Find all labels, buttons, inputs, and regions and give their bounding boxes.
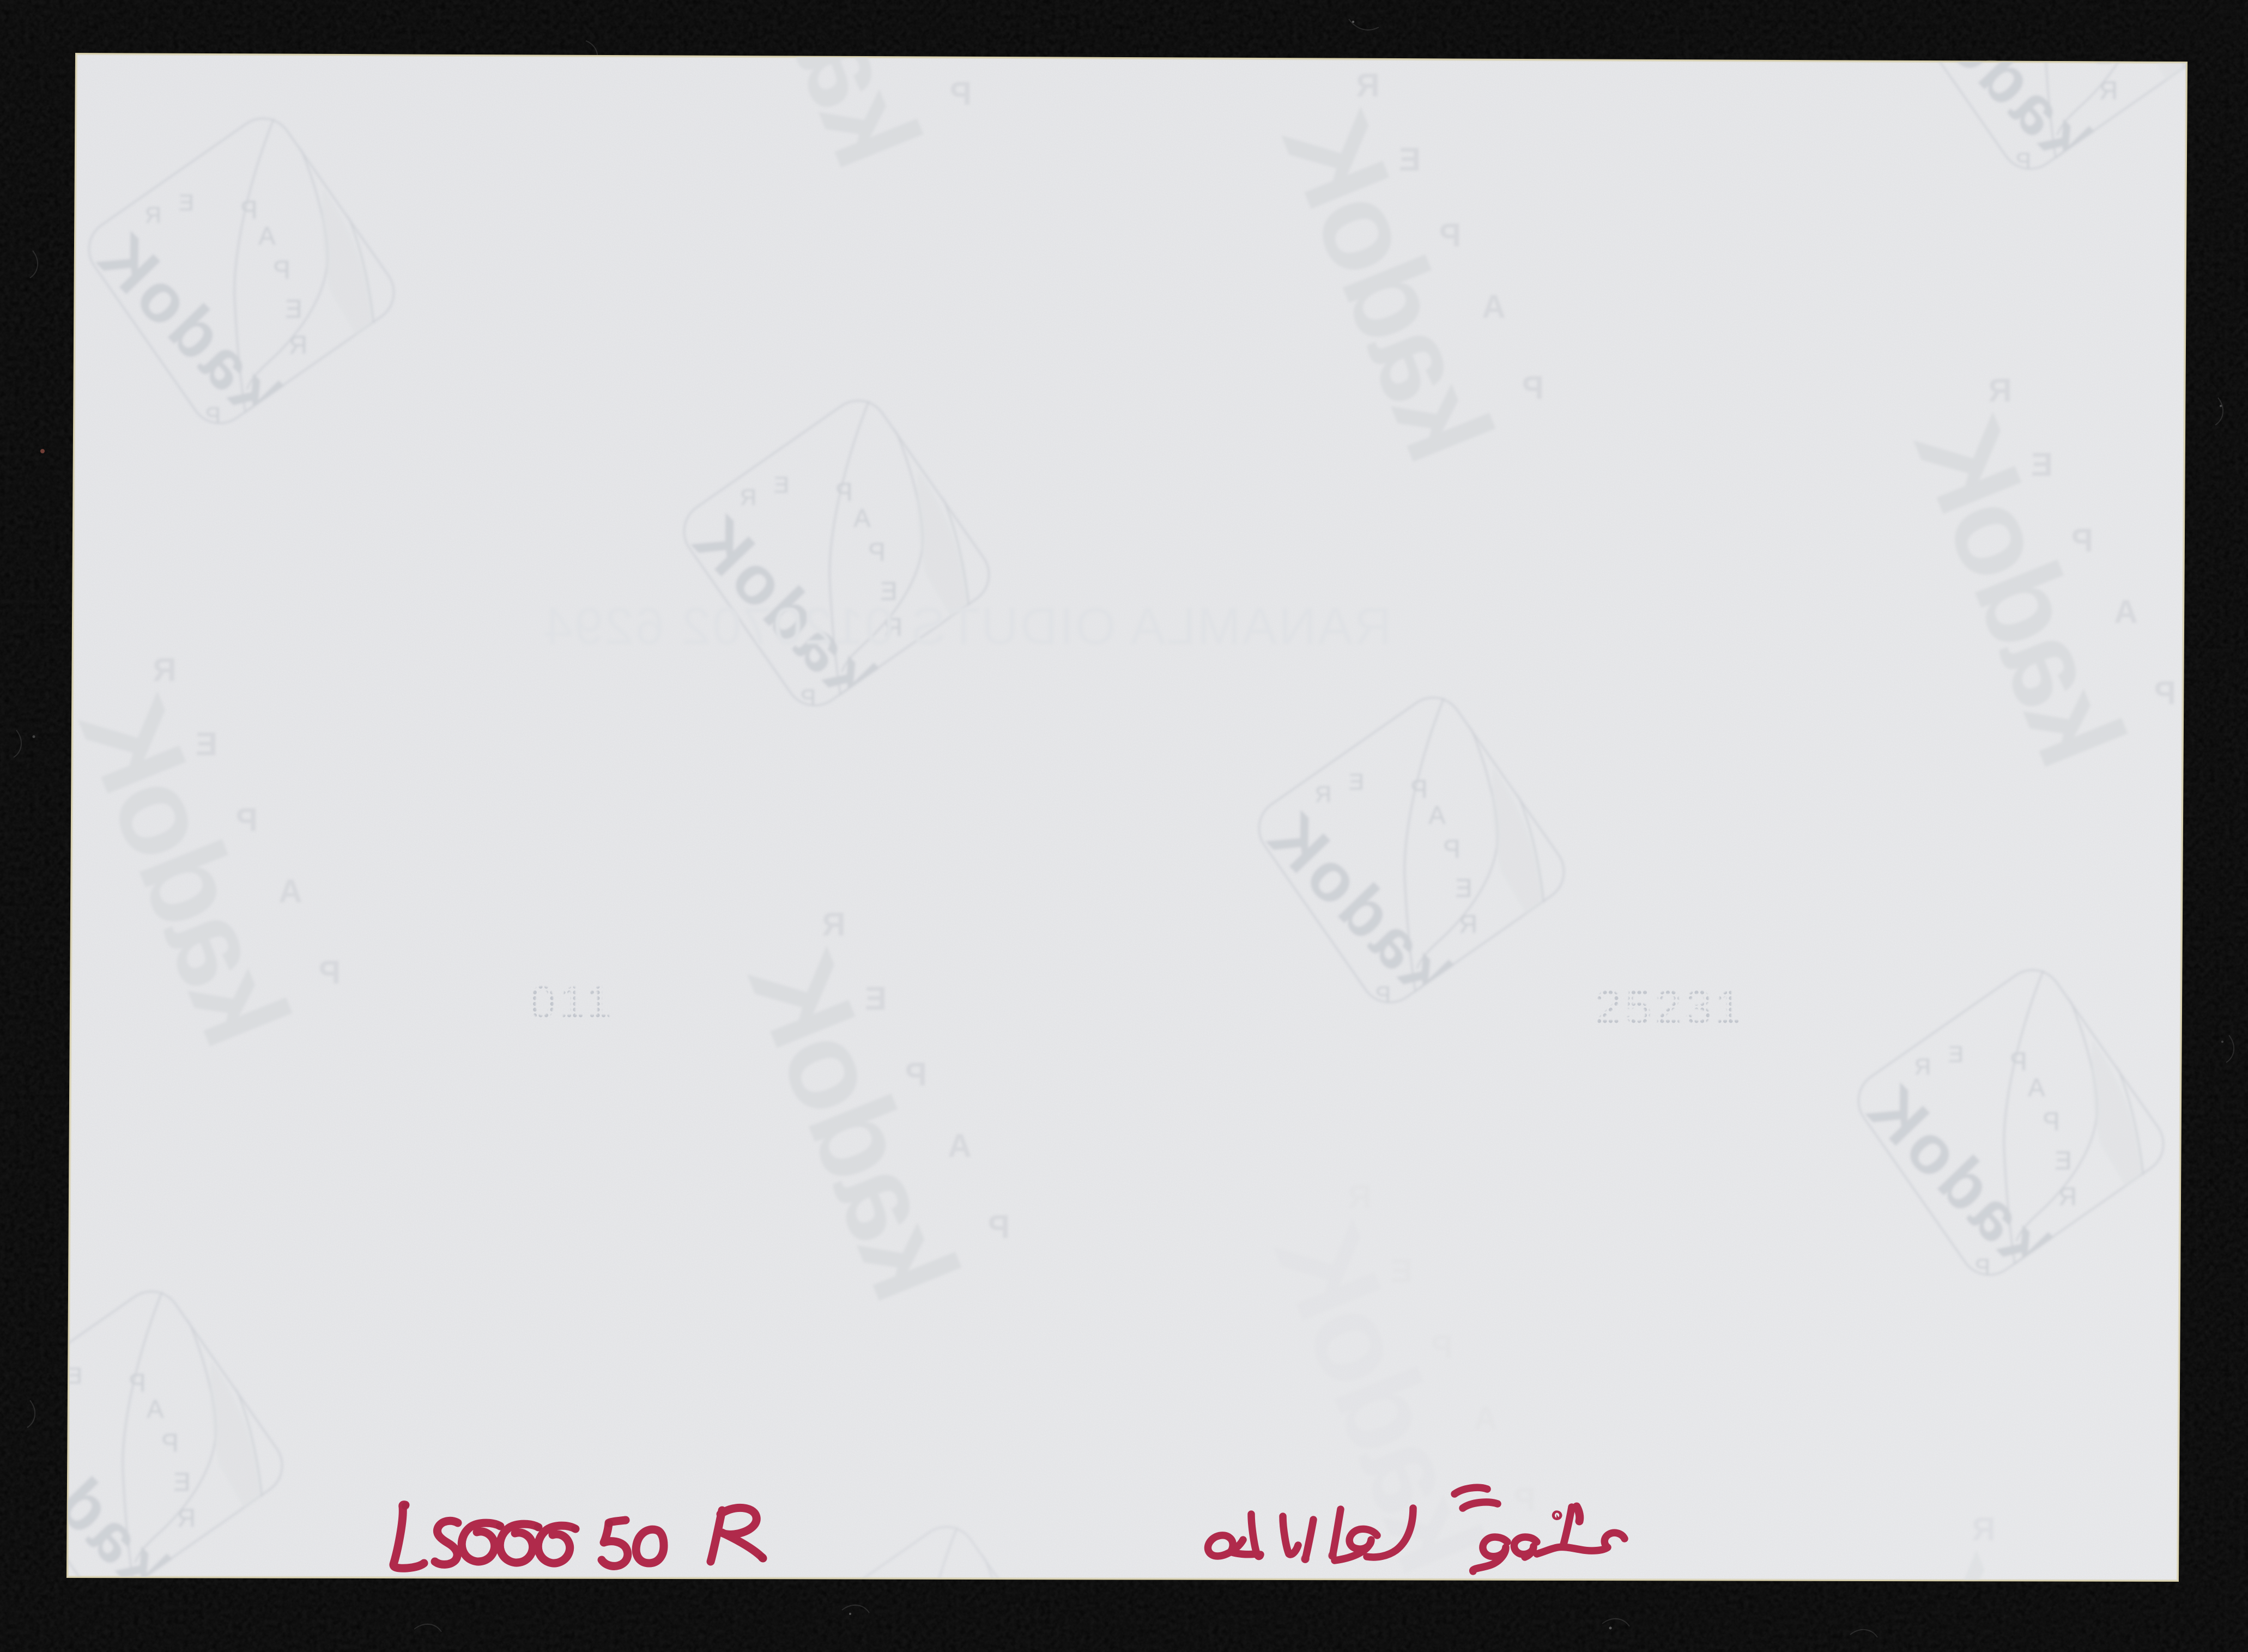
svg-text:25231: 25231 — [1595, 980, 1745, 1034]
svg-text:RANAMLA OIDUTS 0120702 6294: RANAMLA OIDUTS 0120702 6294 — [542, 597, 1392, 655]
svg-text:011: 011 — [530, 977, 616, 1028]
